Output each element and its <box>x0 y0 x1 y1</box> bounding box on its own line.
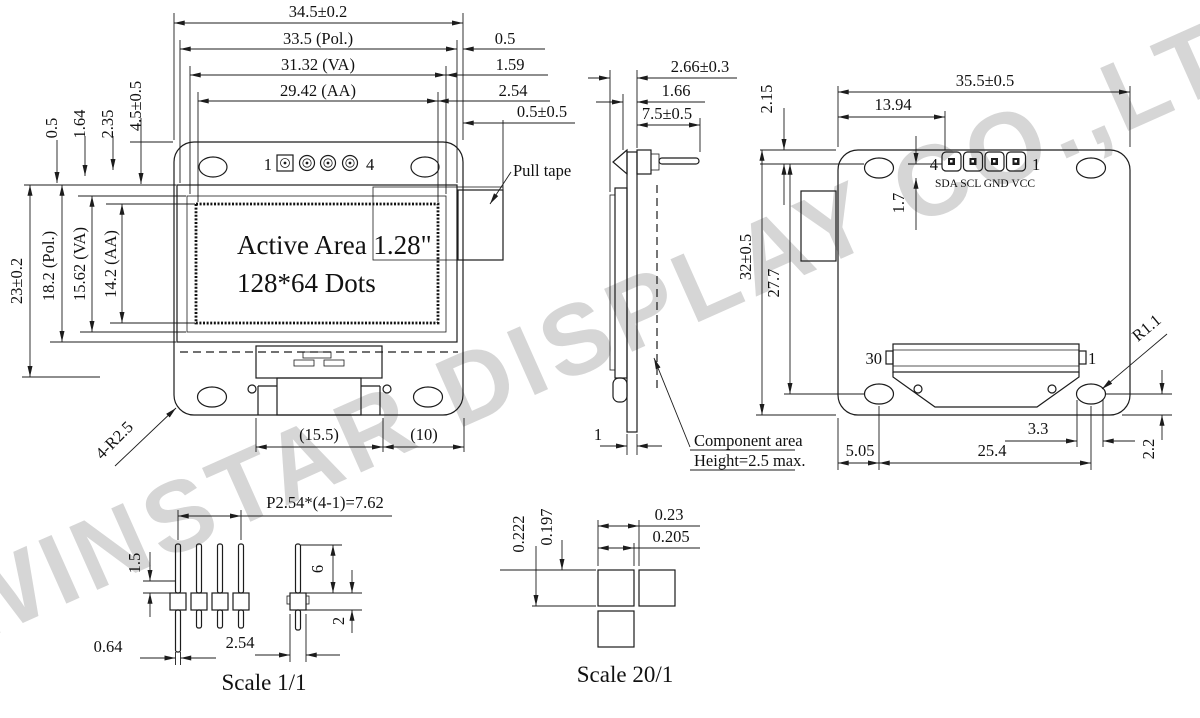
fpc-connector <box>893 344 1079 372</box>
dot <box>639 570 675 606</box>
pull-tape-label: Pull tape <box>513 161 571 180</box>
dim-back-inner-height: 27.7 <box>764 269 783 298</box>
component-note-2: Height=2.5 max. <box>694 451 806 470</box>
dim-height-total: 23±0.2 <box>7 258 26 304</box>
dim-dot-v-size: 0.197 <box>537 508 556 545</box>
active-area-label-2: 128*64 Dots <box>237 268 376 298</box>
dim-hole-span: 25.4 <box>978 441 1007 460</box>
dim-pin-offset: 13.94 <box>874 95 911 114</box>
dim-pitch-formula: P2.54*(4-1)=7.62 <box>266 493 383 512</box>
dim-dot-h-pitch: 0.23 <box>655 505 684 524</box>
back-view: 4 1 SDA SCL GND VCC 30 1 35.5±0.5 13.94 <box>736 71 1172 470</box>
dim-pad-offset: 1.7 <box>889 193 908 214</box>
dim-hole-left: 5.05 <box>846 441 875 460</box>
dim-bottom-edge: (10) <box>410 425 438 444</box>
back-pin-last-label: 1 <box>1032 155 1040 174</box>
side-flex-fold <box>613 378 627 402</box>
pin-header-detail: P2.54*(4-1)=7.62 1.5 6 2 0.64 2.54 Scale… <box>94 493 392 695</box>
va-outline <box>187 196 446 332</box>
front-view: 1 4 Active Area 1.28" 128*64 Dots Pull t… <box>7 2 575 466</box>
dim-height-pol: 18.2 (Pol.) <box>39 231 58 301</box>
scale-caption-1: Scale 1/1 <box>222 670 307 695</box>
dim-hole-right: 3.3 <box>1028 419 1049 438</box>
dim-dot-v-pitch: 0.222 <box>509 515 528 552</box>
back-pull-tape-hatch <box>801 191 836 261</box>
dim-pin-length: 6 <box>308 565 327 573</box>
flex-connector-hatch <box>256 346 382 378</box>
connector-skirt <box>893 372 1079 407</box>
front-pin-last-label: 4 <box>366 155 374 174</box>
dim-thickness-glass: 1.66 <box>662 81 691 100</box>
side-pcb <box>627 152 637 432</box>
alignment-hole <box>248 385 256 393</box>
dim-left-small-3: 4.5±0.5 <box>126 81 145 131</box>
alignment-hole <box>1048 385 1056 393</box>
dot-pitch-detail: 0.23 0.205 0.222 0.197 Scale 20/1 <box>500 505 700 687</box>
front-pin-first-label: 1 <box>264 155 272 174</box>
dim-right-0: 0.5 <box>495 29 516 48</box>
dim-right-1: 1.59 <box>496 55 525 74</box>
active-area-label-1: Active Area 1.28" <box>237 230 432 260</box>
side-polarizer <box>610 195 615 370</box>
dim-right-3: 0.5±0.5 <box>517 102 567 121</box>
dim-left-small-1: 1.64 <box>70 110 89 139</box>
back-pin-first-label: 4 <box>930 155 938 174</box>
dim-height-va: 15.62 (VA) <box>70 227 89 301</box>
mount-hole <box>1077 158 1106 178</box>
polarizer-outline <box>177 185 457 342</box>
alignment-hole <box>383 385 391 393</box>
dim-right-2: 2.54 <box>499 81 528 100</box>
mount-hole <box>865 158 894 178</box>
pin-names-label: SDA SCL GND VCC <box>935 178 1035 190</box>
mount-hole <box>199 157 227 177</box>
dim-edge-offset: 2.15 <box>757 85 776 114</box>
mount-hole <box>865 384 894 404</box>
dim-thickness-total: 2.66±0.3 <box>671 57 730 76</box>
mount-hole <box>198 387 227 407</box>
dot <box>598 570 634 606</box>
mount-hole <box>1077 384 1106 404</box>
dim-hole-bottom: 2.2 <box>1139 439 1158 460</box>
dim-back-height: 32±0.5 <box>736 234 755 280</box>
conn-pin1-label: 1 <box>1088 349 1096 368</box>
dim-pin-width: 0.64 <box>94 637 123 656</box>
dim-pcb-thickness: 1 <box>594 425 602 444</box>
side-glass <box>615 188 627 378</box>
dim-width-total: 34.5±0.2 <box>289 2 348 21</box>
dim-height-aa: 14.2 (AA) <box>101 230 120 298</box>
dim-dot-h-size: 0.205 <box>652 527 689 546</box>
dim-width-aa: 29.42 (AA) <box>280 81 356 100</box>
dim-body-height: 2 <box>329 617 348 625</box>
dim-spacing: 2.54 <box>226 633 255 652</box>
pull-tape-hatch <box>458 190 503 260</box>
dim-pin-length: 7.5±0.5 <box>642 104 692 123</box>
dim-tail-length: 1.5 <box>125 553 144 574</box>
flex-tab-hatch <box>277 378 361 415</box>
side-pin-housing <box>637 150 651 174</box>
dim-left-small-0: 0.5 <box>42 118 61 139</box>
alignment-hole <box>914 385 922 393</box>
drawing-sheet: WINSTAR DISPLAY CO.,LTD. <box>0 0 1200 718</box>
component-note-1: Component area <box>694 431 803 450</box>
side-view: 2.66±0.3 1.66 7.5±0.5 1 Component area H… <box>588 57 806 470</box>
dim-left-small-2: 2.35 <box>98 110 117 139</box>
interface-pads <box>942 152 1026 171</box>
corner-radius-label: 4-R2.5 <box>91 417 137 463</box>
mount-hole <box>411 157 439 177</box>
dim-width-pol: 33.5 (Pol.) <box>283 29 353 48</box>
dim-width-va: 31.32 (VA) <box>281 55 355 74</box>
front-pins <box>300 156 358 171</box>
technical-drawing: 1 4 Active Area 1.28" 128*64 Dots Pull t… <box>0 0 1200 718</box>
side-pin <box>659 158 699 164</box>
active-area-outline <box>196 204 438 323</box>
dim-back-width: 35.5±0.5 <box>956 71 1015 90</box>
conn-pin30-label: 30 <box>866 349 883 368</box>
scale-caption-20: Scale 20/1 <box>577 662 673 687</box>
solder-joint <box>613 150 627 174</box>
mount-hole <box>414 387 443 407</box>
dim-bottom-tab: (15.5) <box>299 425 339 444</box>
dot <box>598 611 634 647</box>
